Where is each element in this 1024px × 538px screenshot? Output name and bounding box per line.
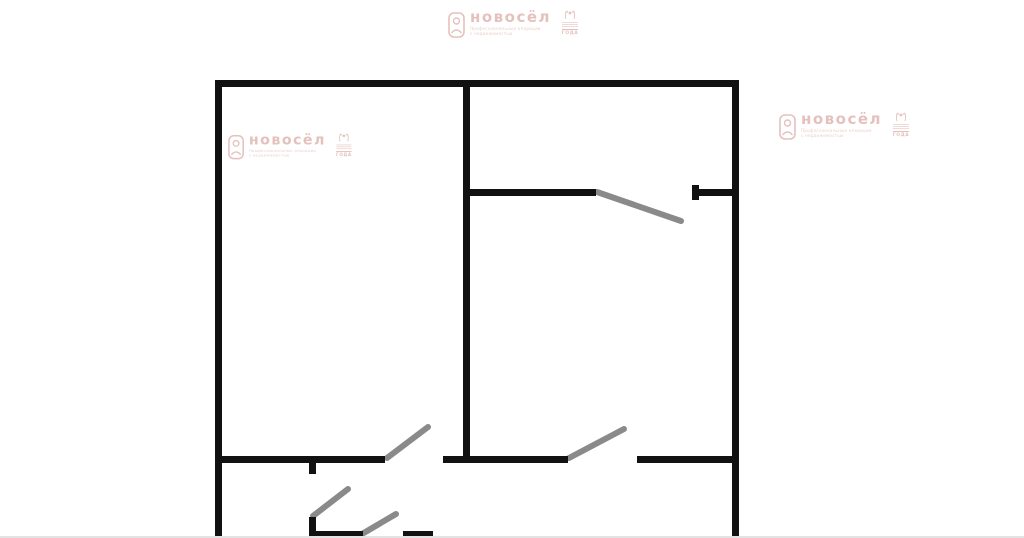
wall-mid-wall-right [637, 456, 732, 463]
wall-mid-wall-left [222, 456, 385, 463]
wall-top-right-door-cap [692, 185, 699, 200]
wall-mid-wall-center [443, 456, 568, 463]
door-swing-bottom-left [313, 489, 348, 516]
floorplan-canvas [0, 0, 1024, 538]
wall-outer-top [215, 80, 739, 87]
wall-outer-right [732, 80, 739, 538]
wall-top-right-room-left [470, 189, 596, 196]
door-swing-bottom-center [362, 514, 396, 534]
wall-mid-wall-stub [309, 463, 316, 474]
wall-divider-vertical [463, 87, 470, 463]
floorplan-page: { "page": { "background": "#ffffff", "bo… [0, 0, 1024, 538]
door-swing-mid-left [387, 427, 428, 458]
door-swing-mid-right [569, 429, 624, 458]
door-swing-top-right [597, 192, 681, 221]
wall-outer-left [215, 80, 222, 538]
